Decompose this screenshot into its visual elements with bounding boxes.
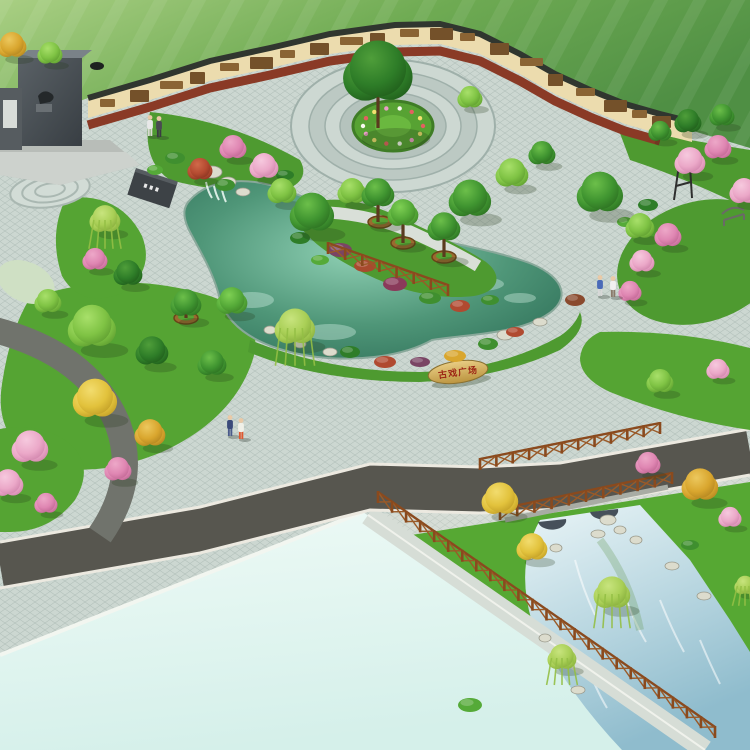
shrub [354,260,376,272]
rock [571,686,585,694]
rock [236,188,250,196]
flower-dot [384,106,388,110]
shrub [419,292,441,304]
flower-dot [397,106,401,110]
mural-panel [340,37,363,45]
mural-panel [310,43,329,55]
park-render-stage: 古戏广场 [0,0,750,750]
shrub [311,255,329,265]
mural-panel [160,81,183,89]
flower-dot [364,116,368,120]
mural-panel [250,57,273,69]
shrub [506,327,524,337]
shrub [681,540,699,550]
shrub [458,698,482,712]
shrub [478,338,498,350]
rock [264,326,276,334]
shrub [383,277,407,291]
mural-panel [190,72,205,84]
flower-dot [418,116,422,120]
rock [550,544,562,552]
mural-panel [400,29,419,37]
mural-panel [520,58,543,66]
flower-dot [361,124,365,128]
shrub [481,295,499,305]
shrub [410,357,430,367]
statue-pedestal [36,104,52,112]
shrub [165,152,185,164]
flower-dot [421,124,425,128]
rock [591,530,605,538]
mural-panel [604,100,627,112]
mural-panel [490,43,509,55]
mural-panel [548,74,563,86]
mural-panel [632,110,647,118]
rock [665,562,679,570]
monument-panel [3,100,17,128]
shrub [374,356,396,368]
rock [533,318,547,326]
park-render: 古戏广场 [0,0,750,750]
mural-panel [576,88,595,96]
shrub [450,300,470,312]
shrub [444,350,466,362]
shrub [340,346,360,358]
rock [697,592,711,600]
mural-panel [130,90,149,102]
rock [614,526,626,534]
mural-panel [220,63,239,71]
shrub [147,165,163,175]
mural-panel [460,33,475,41]
shrub [638,199,658,211]
rock [600,515,616,525]
mural-panel [100,99,115,107]
rock [539,634,551,642]
rock [630,536,642,544]
wall-sculpture [90,62,104,70]
mural-panel [280,50,295,58]
mural-panel [430,28,453,40]
shrub [565,294,585,306]
flower-dot [372,110,376,114]
flower-dot [410,110,414,114]
rock [323,348,337,356]
